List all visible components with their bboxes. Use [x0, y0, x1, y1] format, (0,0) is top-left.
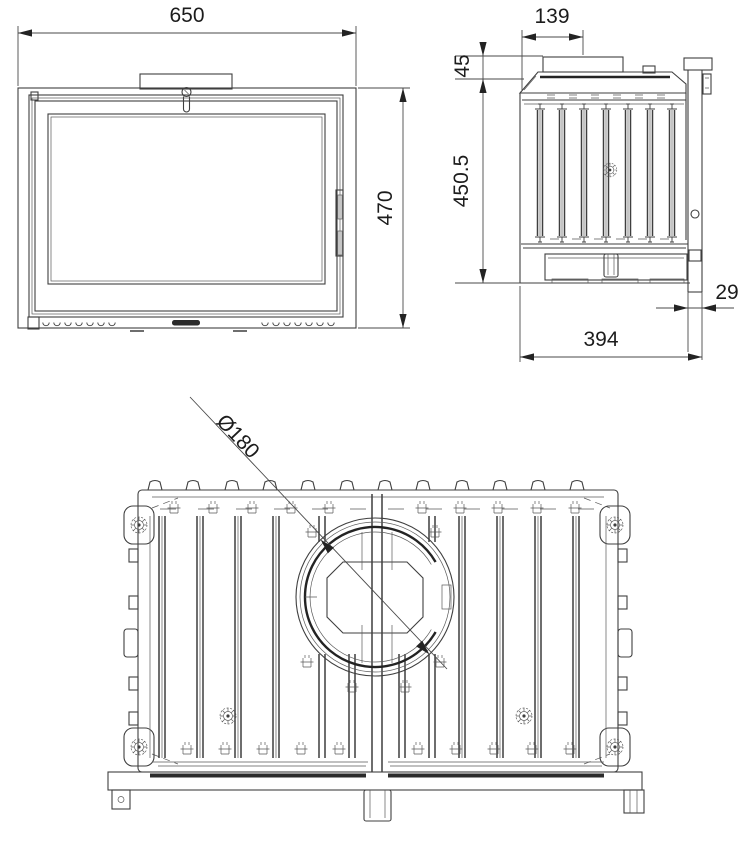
top-rear-bumps — [148, 481, 584, 491]
stove-technical-drawing: 650 470 — [0, 0, 754, 846]
top-bottom-lines — [152, 762, 604, 766]
dim-side-flue-offset-label: 139 — [534, 5, 569, 28]
dim-side-depth: 394 — [520, 286, 702, 362]
side-ribs — [538, 110, 675, 236]
side-view: 139 45 450.5 29 394 — [450, 5, 739, 362]
top-screw-right — [516, 708, 532, 724]
dim-side-depth-label: 394 — [583, 328, 618, 351]
front-door-handle — [182, 88, 191, 113]
drawing-canvas: 650 470 — [0, 0, 754, 846]
front-bottom-left-bracket — [28, 317, 39, 329]
top-front-frame-bar — [108, 772, 644, 821]
side-base-box — [520, 254, 690, 283]
dim-front-height: 470 — [358, 88, 410, 328]
dim-front-height-label: 470 — [374, 190, 397, 225]
dim-side-heights: 45 450.5 — [450, 42, 543, 283]
top-view: Ø180 — [108, 397, 644, 821]
front-view: 650 470 — [18, 4, 410, 331]
dim-front-width-label: 650 — [169, 4, 204, 27]
front-nameplate — [172, 320, 200, 326]
dim-side-body-height-label: 450.5 — [450, 155, 473, 208]
dim-side-overhang-label: 29 — [715, 281, 738, 304]
front-trim-frame — [18, 88, 356, 328]
side-top-cover — [520, 66, 686, 93]
dim-top-flue-diameter-label: Ø180 — [212, 410, 264, 463]
dim-side-overhang: 29 — [656, 281, 739, 360]
side-door-panel — [684, 58, 712, 292]
front-flue-block — [140, 74, 232, 89]
side-knob — [603, 163, 617, 177]
top-screw-left — [220, 708, 236, 724]
dim-top-flue-diameter: Ø180 — [190, 397, 447, 669]
dim-side-top-label: 45 — [451, 54, 474, 77]
front-door-glass — [48, 114, 325, 284]
side-flue-box — [543, 57, 623, 72]
